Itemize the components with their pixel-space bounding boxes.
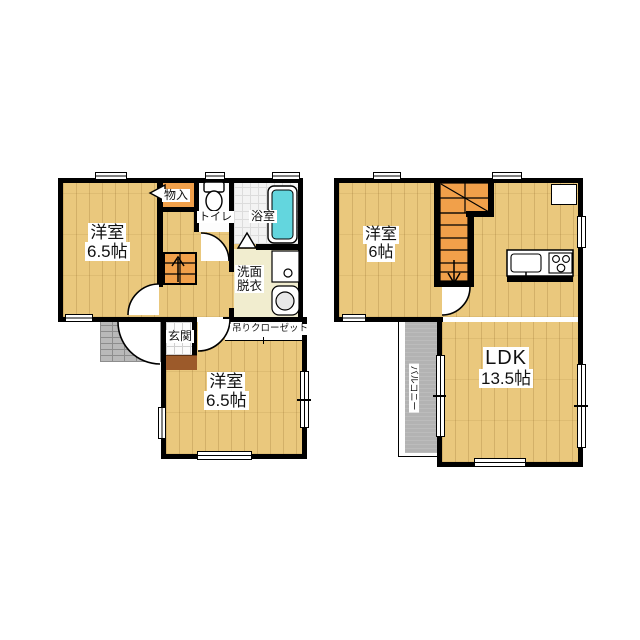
f1-bath-label: 浴室 <box>249 210 277 223</box>
f1-room-a-label: 洋室 6.5帖 <box>85 223 130 261</box>
washing-machine-icon <box>272 251 299 282</box>
f1-stairs-up-arrow <box>172 257 184 282</box>
f1-room-b-size: 6.5帖 <box>204 391 249 410</box>
f1-toilet-label: トイレ <box>197 211 234 223</box>
f1-door-arc-roomB <box>198 319 230 351</box>
f2-stairs-grid <box>440 183 490 281</box>
f1-bath-door-triangle <box>238 233 256 248</box>
f1-room-a-size: 6.5帖 <box>85 242 130 261</box>
washbasin-icon <box>272 286 299 315</box>
f1-entrance-label: 玄関 <box>166 330 194 343</box>
f2-balcony-label: バルコニー <box>409 364 419 413</box>
f2-room-name: 洋室 <box>363 226 399 244</box>
f2-room-size: 6帖 <box>367 244 396 262</box>
kitchen-counter-icon <box>507 250 573 282</box>
f2-ldk-size: 13.5帖 <box>479 369 533 388</box>
f1-hanging-closet-label: 吊りクローゼット <box>230 324 310 335</box>
f1-washroom-label: 洗面 脱衣 <box>235 265 264 293</box>
f1-door-arc-roomA <box>128 284 159 315</box>
f2-ldk-name: LDK <box>483 347 529 369</box>
f2-ldk-label: LDK 13.5帖 <box>479 347 533 388</box>
floor-plan-canvas: 洋室 6.5帖 物入 トイレ 浴室 洗面 脱衣 玄関 吊りクローゼット 洋室 6… <box>0 0 640 640</box>
f1-storage-label: 物入 <box>162 189 190 202</box>
f1-stairs-grid <box>163 252 197 285</box>
f1-door-arc-entrance <box>118 322 160 364</box>
f1-room-b-label: 洋室 6.5帖 <box>204 372 249 410</box>
f2-room-label: 洋室 6帖 <box>363 226 399 262</box>
f1-room-a-name: 洋室 <box>88 223 126 242</box>
fixtures-layer <box>0 0 640 640</box>
toilet-fixture-icon <box>204 182 224 211</box>
f2-door-arc-stairs <box>442 287 470 315</box>
f1-room-b-name: 洋室 <box>207 372 245 391</box>
f1-door-arc-toilet <box>201 233 229 261</box>
